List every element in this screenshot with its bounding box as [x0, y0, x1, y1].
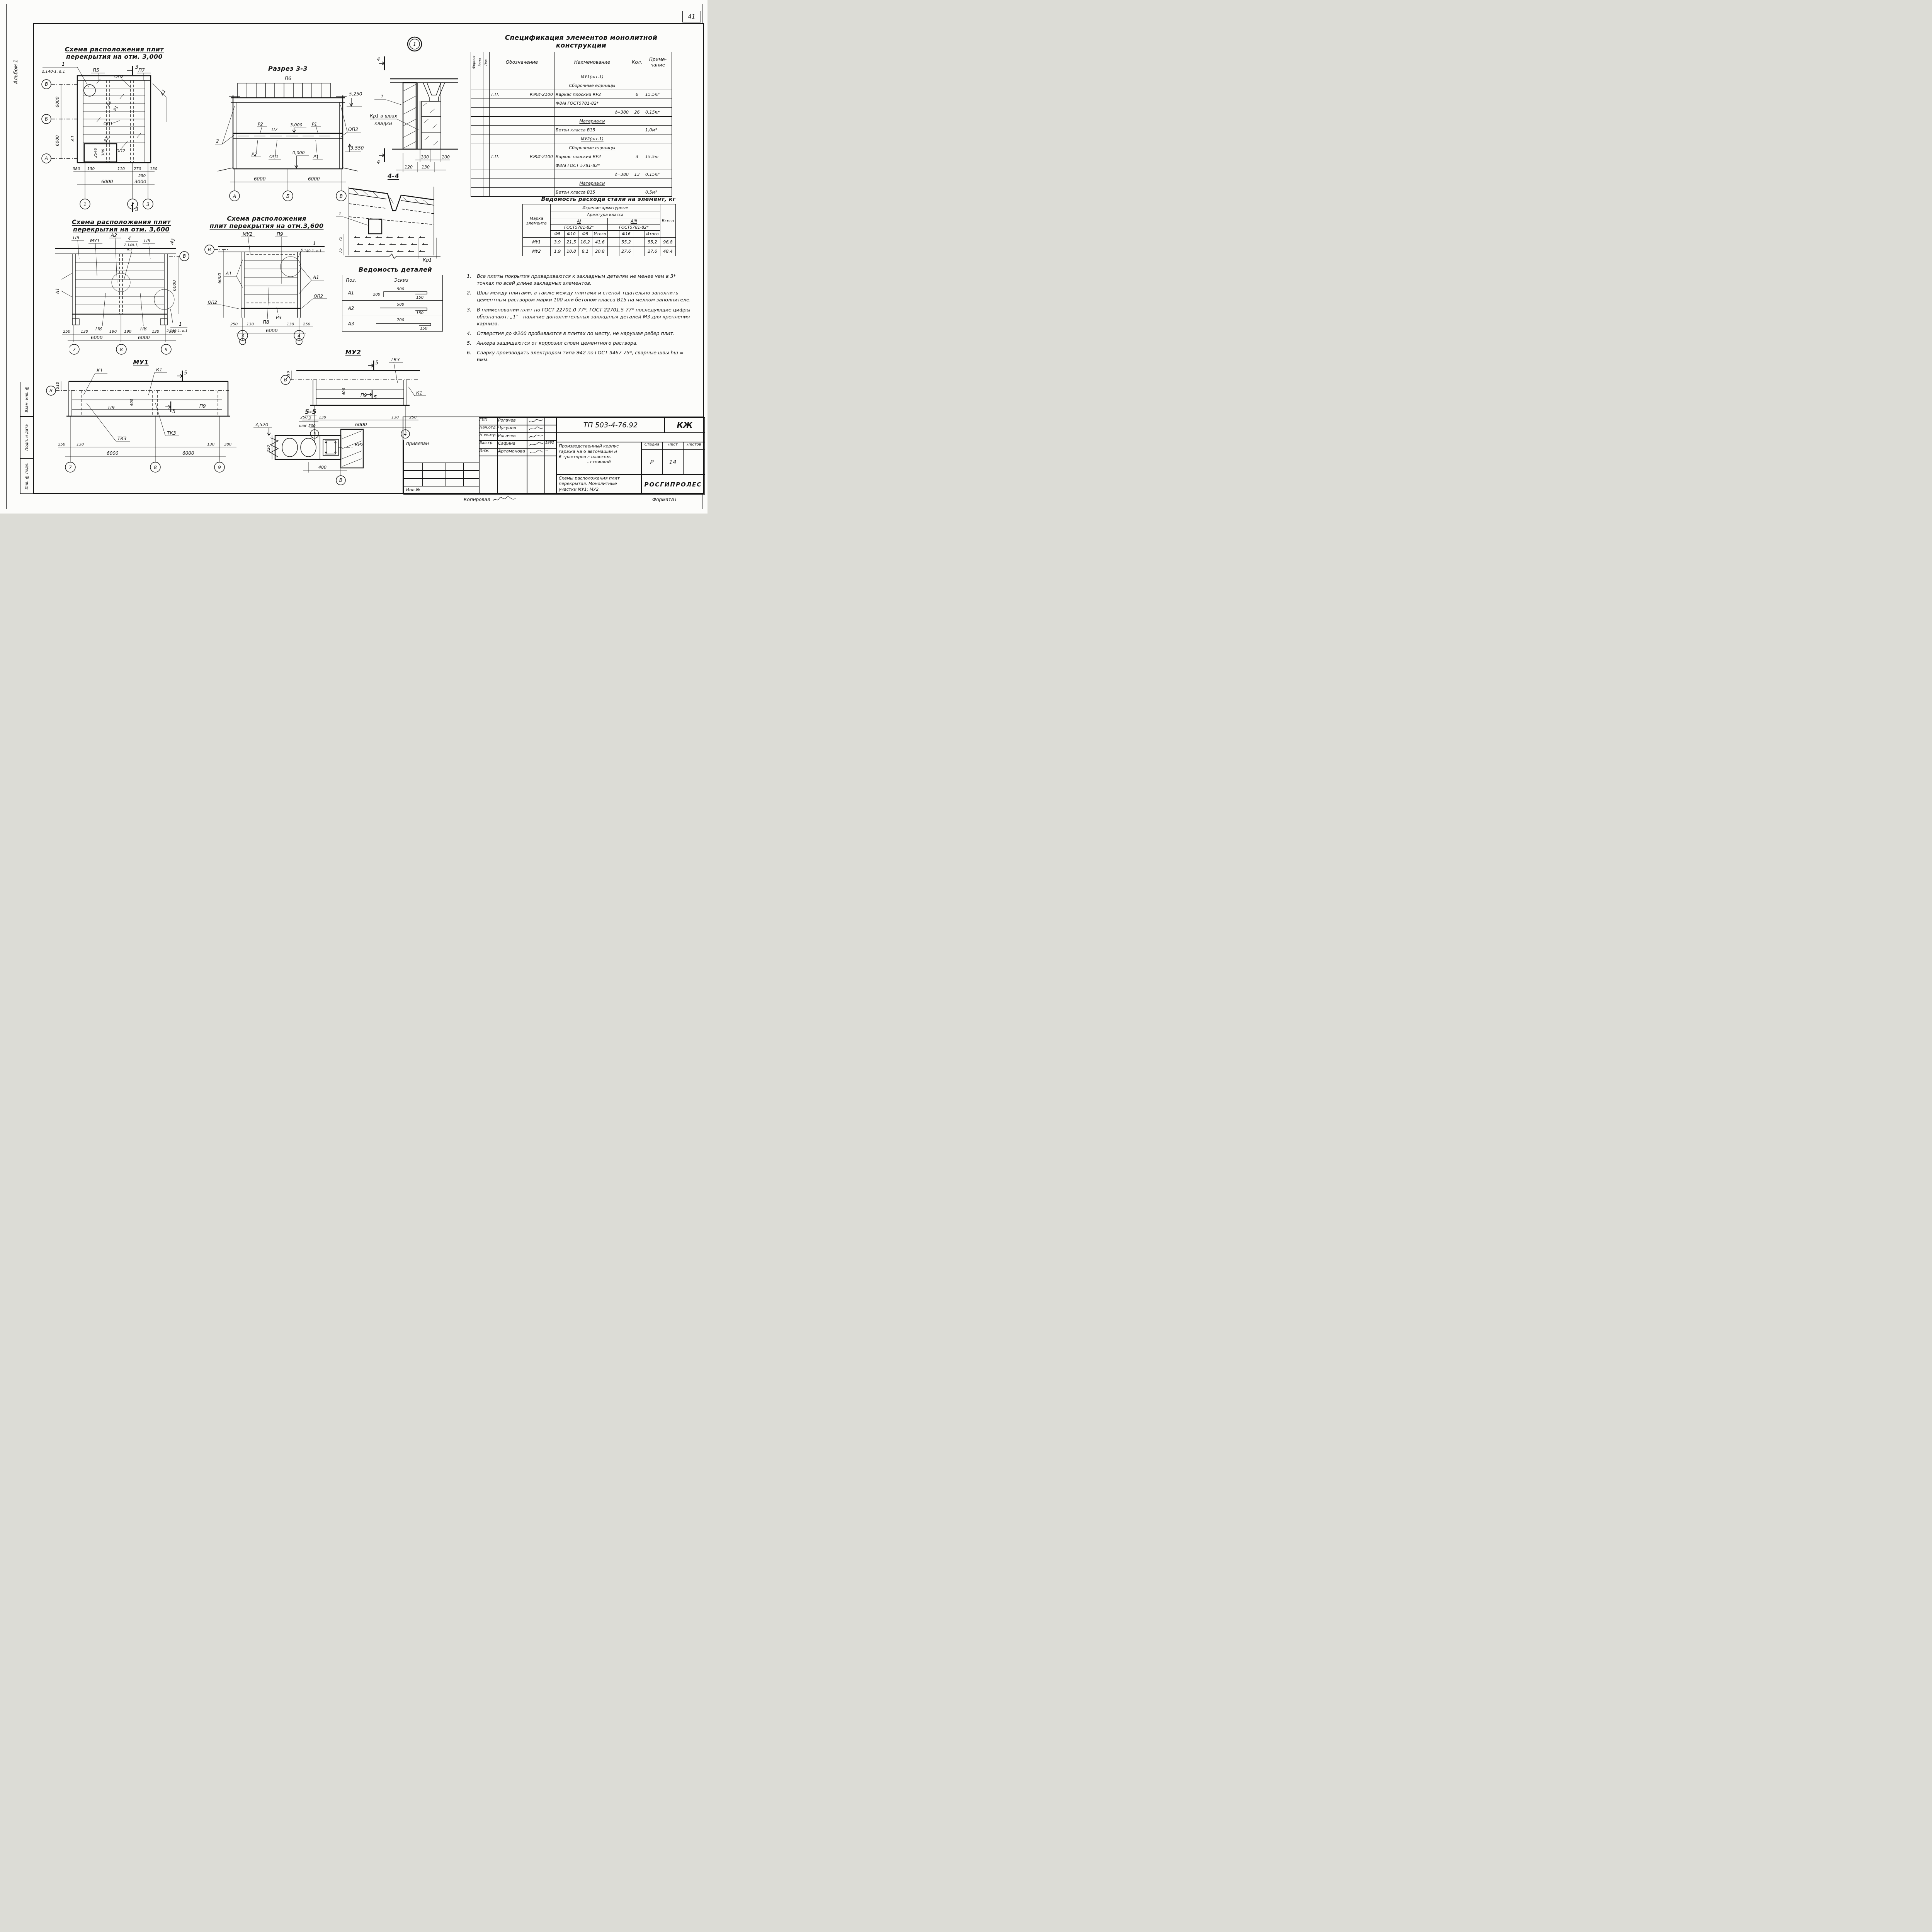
scheme-3600-right-title-1: Схема расположения	[201, 215, 332, 222]
dim: 250	[303, 322, 310, 327]
axis-label: 3	[146, 202, 150, 207]
sign-role: Нач.отд.	[479, 425, 498, 433]
dim: 6000	[138, 335, 150, 340]
dim: 150	[416, 296, 423, 299]
steel-sub	[608, 231, 619, 238]
steel-row-marka: МУ1	[523, 238, 551, 247]
dim: 250	[63, 330, 70, 334]
spec-cell: МУ2(шт.1)	[554, 134, 630, 143]
elevation: 3,550	[350, 145, 364, 151]
spec-cell: ℓ=380	[554, 170, 630, 179]
dim: 6000	[217, 273, 222, 284]
dim: 6000	[91, 335, 103, 340]
axis-label: В	[49, 388, 53, 393]
note-item: 3.В наименовании плит по ГОСТ 22701.0-77…	[467, 306, 694, 327]
plate-label: ТК3	[117, 436, 126, 441]
plate-label: П9	[199, 403, 206, 409]
plate-label: ТК3	[391, 357, 400, 362]
dim: 380	[224, 442, 231, 447]
scheme-3000-title-2: перекрытия на отм. 3,000	[39, 53, 190, 60]
steel-h-aiii: АIII	[608, 218, 660, 224]
dim: 250	[230, 322, 238, 327]
plate-label: Кр1	[423, 257, 432, 262]
plate-label: П6	[285, 76, 291, 81]
plate-label: Р3	[276, 315, 282, 320]
sign-role: Зав.гр.	[479, 440, 498, 448]
plate-label: А1	[225, 271, 232, 276]
plate-label: П8	[140, 326, 147, 332]
dim: 100	[442, 155, 450, 160]
callout-number: 1	[338, 211, 342, 216]
dim: 400	[342, 388, 346, 395]
plate-label: П9	[144, 238, 151, 243]
section-mark-label: 5	[172, 409, 175, 415]
ved-eskiz: 500 200 150	[360, 285, 443, 301]
ved-eskiz: 700 150	[360, 316, 443, 332]
spec-cell: Т.П.КЖИ-2100	[490, 152, 554, 161]
note-item: 5.Анкера защищаются от коррозии слоем це…	[467, 340, 694, 347]
note-item: 6.Сварку производить электродом типа Э42…	[467, 349, 694, 363]
plate-label: П9	[73, 235, 80, 240]
sign-name: Чугунов	[498, 425, 527, 433]
elevation: 3,520	[255, 422, 269, 427]
callout-ref: 2.140-1, в.1	[167, 329, 187, 333]
ved-h-eskiz: Эскиз	[360, 275, 443, 285]
plate-label: ОП1	[269, 154, 279, 159]
sign-date: ~	[545, 448, 556, 456]
dim: 500	[397, 303, 404, 307]
sign-name: Рогачев	[498, 417, 527, 425]
note-item: 1.Все плиты покрытия привариваются к зак…	[467, 273, 694, 287]
mu2-title: МУ2	[276, 349, 430, 356]
ved-poz: А2	[342, 301, 360, 316]
ved-poz: А1	[342, 285, 360, 301]
plate-label: Р1	[312, 122, 317, 127]
notes: 1.Все плиты покрытия привариваются к зак…	[467, 273, 694, 408]
sheet-label: Лист	[662, 442, 683, 450]
callout-number: 1	[62, 61, 65, 67]
callout-ref: в.1	[127, 248, 133, 252]
dim: 200	[373, 293, 380, 297]
razrez-3-3-title: Разрез 3-3	[211, 65, 365, 72]
vedomost-title: Ведомость деталей	[342, 266, 449, 273]
scheme-3600-left: Схема расположения плит перекрытия на от…	[48, 218, 194, 348]
dim: 500	[397, 287, 404, 291]
dim: 130	[87, 167, 95, 171]
dim: 250	[58, 442, 65, 447]
plate-label: ОП1	[104, 121, 113, 126]
sign-date	[545, 425, 556, 433]
callout-ref: 2.140-1, в.1	[42, 70, 65, 74]
sign-name: Артамонова	[498, 448, 527, 456]
section-5-5-drawing: 3,520 2 шаг 500 КР2 220	[250, 415, 371, 486]
axis-label: 8	[120, 347, 123, 352]
steel-sub: Итого	[592, 231, 608, 238]
spec-cell: Бетон класса В15	[554, 126, 630, 134]
node-label: Кр1 в швах	[370, 113, 398, 119]
callout-number: 1	[313, 241, 316, 246]
spec-cell: ℓ=380	[554, 108, 630, 117]
signature	[527, 425, 545, 433]
elevation: 0,000	[293, 150, 305, 155]
steel-h-izdeliya: Изделия арматурные	[551, 204, 660, 211]
spec-col-zona: Зона	[477, 52, 483, 72]
dim: 510	[56, 382, 60, 389]
ved-h-poz: Поз.	[342, 275, 360, 285]
mu1-view: МУ1 В 510 400 К1 К1 5 5 П9 П9 ТК3	[43, 359, 238, 474]
dim: 130	[391, 415, 399, 420]
scheme-3000: Схема расположения плит перекрытия на от…	[39, 46, 190, 223]
axis-label: 3	[241, 333, 244, 338]
callout-ref: 2.140-1, в.1	[301, 249, 321, 253]
scheme-3600-left-drawing: В 6000 П9 МУ1 А2 4 2.140-1, в.1 П9 А1 А1…	[48, 233, 194, 346]
node-label: кладки	[374, 121, 392, 126]
dim: 130	[422, 165, 430, 170]
section-4-4-title: 4-4	[335, 172, 451, 180]
scheme-3600-left-title-2: перекрытия на отм. 3,600	[48, 226, 194, 233]
steel-sub	[633, 231, 645, 238]
section-mark-label: 4	[377, 160, 380, 165]
mu1-drawing: В 510 400 К1 К1 5 5 П9 П9 ТК3 ТК3	[43, 366, 238, 473]
spec-cell: Каркас плоский КР2	[554, 90, 630, 99]
steel-table: Маркаэлемента Изделия арматурные Всего А…	[522, 204, 676, 256]
steel-table-block: Ведомость расхода стали на элемент, кг М…	[522, 196, 694, 270]
dim: 6000	[55, 97, 60, 107]
axis-label: 2	[131, 202, 134, 207]
axis-label: А	[44, 156, 48, 161]
spec-col-oboz: Обозначение	[490, 52, 554, 72]
plate-label: ОП2	[208, 300, 217, 305]
plate-label: ОП2	[114, 74, 124, 79]
plate-label: П7	[138, 68, 145, 73]
steel-sub: Итого	[645, 231, 660, 238]
dim: 6000	[308, 176, 320, 182]
spec-cell: Ф8АI ГОСТ5781-82*	[554, 99, 630, 108]
scheme-3600-right-title-2: плит перекрытия на отм.3,600	[201, 222, 332, 230]
signature	[527, 448, 545, 456]
sheet-title: Схемы расположения плитперекрытия. Монол…	[556, 474, 641, 495]
steel-sub: Ф8	[551, 231, 565, 238]
dim: 220	[267, 445, 271, 452]
title-block: привязан Инв.№ ГИП Рогачев Нач.отд. Чугу…	[403, 417, 704, 494]
callout-number: 2	[216, 138, 219, 144]
scheme-3000-title-1: Схема расположения плит	[39, 46, 190, 53]
sign-name: Рогачев	[498, 433, 527, 440]
detail-bubble: 1	[413, 42, 416, 48]
spec-col-format: Формат	[471, 52, 477, 72]
plate-label: П9	[108, 405, 115, 410]
section-4-4: 4-4 1 75 75 Кр1	[335, 172, 451, 265]
axis-label: В	[183, 253, 186, 259]
dim: 6000	[101, 179, 113, 184]
organization: РОСГИПРОЛЕС	[641, 474, 705, 495]
plate-label: Р1	[112, 105, 119, 112]
section-mark-label: 5	[374, 395, 377, 401]
plate-label: К1	[97, 368, 103, 373]
dim: 6000	[107, 451, 119, 456]
dim: 75	[338, 248, 343, 253]
steel-h-ai: АI	[551, 218, 608, 224]
dim: 6000	[55, 135, 60, 146]
section-mark-label: 4	[377, 57, 380, 63]
sheets-label: Листов	[683, 442, 705, 450]
plate-label: А1	[313, 275, 319, 280]
sheet-value: 14	[662, 450, 683, 474]
note-item: 4.Отверстия до Ф200 пробиваются в плитах…	[467, 330, 694, 337]
spec-cell: Материалы	[554, 117, 630, 126]
plate-label: П8	[263, 320, 269, 325]
spec-col-kol: Кол.	[630, 52, 644, 72]
plate-label: А2	[111, 233, 117, 238]
steel-h-gost2: ГОСТ5781-82*	[608, 224, 660, 231]
plate-label: А1	[169, 237, 177, 245]
scheme-3600-left-title-1: Схема расположения плит	[48, 218, 194, 226]
spec-col-prim: Приме-чание	[644, 52, 672, 72]
scheme-3600-right-axes: 3 4	[231, 329, 308, 342]
callout-number: 1	[381, 94, 384, 99]
axis-label: 7	[73, 347, 76, 352]
dim: 380	[73, 167, 80, 171]
callout-ref: шаг 500	[299, 424, 316, 428]
spec-title-2: конструкции	[471, 42, 692, 49]
plate-label: К1	[416, 390, 422, 396]
dim: 130	[81, 330, 88, 334]
sign-role: Н.контр.	[479, 433, 498, 440]
dim: 130	[247, 322, 254, 327]
copied-signature	[492, 495, 519, 504]
steel-h-marka: Маркаэлемента	[523, 204, 551, 238]
dim: 120	[405, 165, 413, 170]
spec-col-naim: Наименование	[554, 52, 630, 72]
plate-label: КР2	[355, 442, 364, 447]
sign-date	[545, 417, 556, 425]
drawing-sheet: 41 Альбом 1 Взам. инв. № Подп. и дата Ин…	[0, 0, 707, 514]
dim: 75	[338, 236, 343, 241]
node-detail-1: 1 4 4 1 Кр1 в швах кладки	[369, 33, 460, 185]
scheme-3600-left-axes: 7 8 9	[70, 343, 216, 357]
axis-label: А	[233, 194, 236, 199]
plate-label: ОП2	[348, 127, 358, 132]
album-label: Альбом 1	[13, 39, 19, 104]
doc-type: КЖ	[665, 417, 705, 433]
plate-label: А1	[70, 135, 75, 142]
spec-cell: Бетон класса В15	[554, 188, 630, 197]
scheme-3600-right: Схема расположения плит перекрытия на от…	[201, 215, 332, 346]
plate-label: МУ1	[90, 238, 100, 243]
sign-role: ГИП	[479, 417, 498, 425]
dim: 190	[109, 330, 117, 334]
sign-role: Инж.	[479, 448, 498, 456]
spec-cell: Сборочные единицы	[554, 143, 630, 152]
steel-h-vsego: Всего	[660, 204, 676, 238]
ved-poz: А3	[342, 316, 360, 332]
format-label: ФорматА1	[652, 497, 677, 502]
axis-label: Б	[286, 194, 289, 199]
plate-label: ОП2	[314, 294, 323, 299]
steel-row-marka: МУ2	[523, 247, 551, 256]
dim: 270	[134, 167, 141, 171]
spec-cell: Ф8АI ГОСТ 5781-82*	[554, 161, 630, 170]
plate-label: П8	[95, 326, 102, 332]
dim: 100	[421, 155, 429, 160]
spec-cell: МУ1(шт.1)	[554, 72, 630, 81]
callout-ref: 2.140-1,	[124, 243, 139, 247]
dim: 3000	[134, 179, 146, 184]
spec-cell: Т.П.КЖИ-2100	[490, 90, 554, 99]
plate-label: МУ2	[243, 231, 252, 237]
steel-sub: Ф16	[619, 231, 633, 238]
plate-label: К1	[156, 367, 162, 372]
plate-label: П9	[277, 231, 283, 237]
section-4-4-drawing: 1 75 75 Кр1	[335, 180, 451, 262]
callout-number: 1	[179, 321, 182, 327]
steel-h-gost1: ГОСТ5781-82*	[551, 224, 608, 231]
sign-name: Сафина	[498, 440, 527, 448]
steel-sub: Ф8	[578, 231, 592, 238]
scheme-3600-right-drawing: В 6000 МУ2 П9 1 2.140-1, в.1 А1 А1	[201, 230, 332, 345]
dim: 130	[77, 442, 84, 447]
dim: 130	[150, 167, 157, 171]
dim: 150	[416, 311, 423, 315]
dim: 6000	[172, 280, 177, 291]
callout-number: 2	[308, 416, 311, 421]
dim: 190	[124, 330, 131, 334]
specification: Спецификация элементов монолитной констр…	[471, 34, 692, 196]
dim: 130	[287, 322, 294, 327]
spec-cell: Материалы	[554, 179, 630, 188]
dim: 510	[286, 371, 291, 378]
spec-cell: Каркас плоский КР2	[554, 152, 630, 161]
section-5-5: 5-5 3,520 2 шаг 500 КР2	[250, 408, 371, 487]
stage-label: Стадия	[641, 442, 662, 450]
page-number: 41	[682, 11, 701, 22]
doc-number: ТП 503-4-76.92	[556, 417, 665, 433]
dim: 250	[138, 174, 146, 178]
dim: 130	[207, 442, 214, 447]
axis-label: 9	[165, 347, 168, 352]
axis-label: 1	[83, 202, 87, 207]
ved-eskiz: 500 150	[360, 301, 443, 316]
dim: 110	[117, 167, 125, 171]
elevation: 5,250	[349, 91, 362, 97]
sheets-value	[683, 450, 705, 474]
margin-stamp-inv: Инв. № подл.	[20, 458, 33, 494]
steel-title: Ведомость расхода стали на элемент, кг	[522, 196, 694, 202]
sign-date: 1992	[545, 440, 556, 448]
plate-label: А1	[159, 88, 167, 97]
binding-note: привязан	[403, 440, 479, 463]
mu1-title: МУ1	[43, 359, 238, 366]
axis-label: 7	[69, 465, 72, 470]
spec-table: Формат Зона Поз. Обозначение Наименовани…	[471, 52, 672, 197]
elevation: 3,000	[290, 122, 303, 128]
dim: 400	[130, 399, 134, 406]
steel-sub: Ф10	[565, 231, 578, 238]
node-detail-1-drawing: 1 4 4 1 Кр1 в швах кладки	[369, 33, 460, 185]
spec-col-poz: Поз.	[483, 52, 490, 72]
section-5-5-title: 5-5	[250, 408, 371, 415]
dim: 700	[397, 318, 404, 322]
axis-label: 9	[218, 465, 221, 470]
axis-label: Б	[45, 116, 48, 122]
vedomost-table: Поз. Эскиз А1 500 200 150 А2	[342, 275, 443, 332]
stage-value: Р	[641, 450, 662, 474]
plate-label: П5	[93, 68, 99, 73]
plate-label: Р2	[258, 122, 263, 127]
note-item: 2.Швы между плитами, а также между плита…	[467, 289, 694, 303]
project-name: Производственный корпусгаража на 6 автом…	[556, 442, 641, 474]
signature	[527, 433, 545, 440]
plate-label: Р1	[313, 154, 319, 159]
axis-label: 4	[298, 333, 301, 338]
dim: 2540	[94, 148, 98, 158]
signature	[527, 440, 545, 448]
plate-label: А1	[55, 288, 60, 294]
axis-label: В	[208, 247, 211, 252]
dim: 6000	[254, 176, 266, 182]
spec-title-1: Спецификация элементов монолитной	[471, 34, 692, 42]
plate-label: ОП2	[116, 148, 125, 153]
plate-label: П9	[361, 393, 367, 398]
plate-label: Р2	[103, 136, 110, 143]
signature	[527, 417, 545, 425]
section-mark-label: 5	[184, 370, 187, 376]
margin-stamp-podp: Подп. и дата	[20, 417, 33, 458]
vedomost-detaley: Ведомость деталей Поз. Эскиз А1 500 200 …	[342, 266, 449, 335]
plate-label: П7	[272, 127, 277, 132]
plate-label: А3	[105, 100, 112, 108]
axis-label: В	[45, 82, 48, 87]
dim: 6000	[182, 451, 194, 456]
dim: 400	[318, 465, 327, 470]
dim: 130	[152, 330, 159, 334]
copied-label: Копировал	[464, 497, 490, 502]
plate-label: ТК3	[167, 430, 176, 436]
callout-number: 4	[128, 236, 131, 241]
margin-stamp-vzam: Взам. инв. №	[20, 382, 33, 417]
steel-h-klass: Арматура класса	[551, 211, 660, 218]
spec-cell: Сборочные единицы	[554, 81, 630, 90]
dim: 380	[101, 149, 105, 156]
inv-number-label: Инв.№	[403, 486, 479, 495]
sign-date	[545, 433, 556, 440]
axis-label: 8	[154, 465, 157, 470]
section-mark-label: 5	[375, 360, 378, 366]
dim: 150	[420, 327, 427, 330]
scheme-3000-drawing: 3 3 В Б А 6000 6000	[39, 60, 190, 219]
axis-label: В	[339, 478, 342, 483]
